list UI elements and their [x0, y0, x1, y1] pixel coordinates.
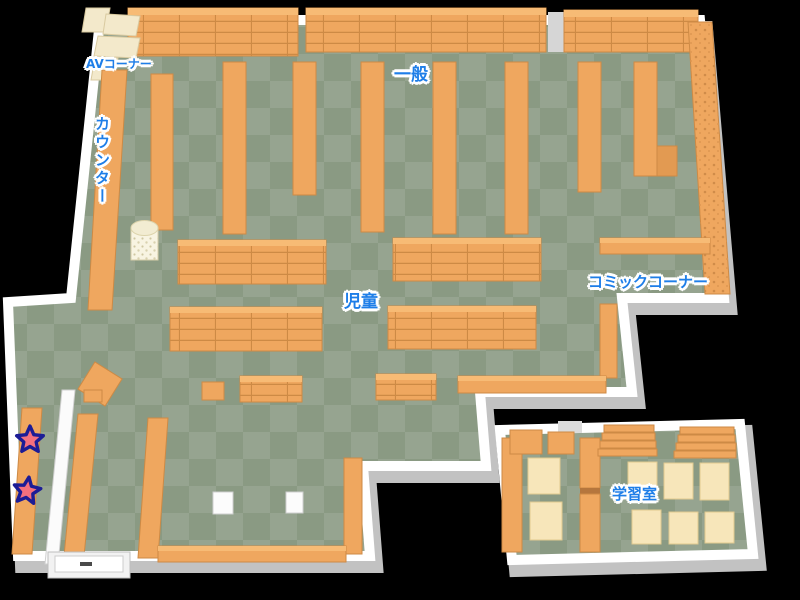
bookshelf: [604, 425, 654, 432]
top-wall-bookshelves: [128, 8, 698, 56]
divider-shelf: [580, 494, 600, 552]
bookshelf: [505, 62, 528, 234]
bookshelf: [361, 62, 384, 232]
bookshelf-top: [376, 374, 436, 380]
bookshelf-grid: [178, 246, 326, 284]
desk: [530, 502, 562, 540]
floor-map-canvas: [0, 0, 800, 600]
bookshelf: [548, 432, 574, 454]
bookshelf-top: [306, 8, 546, 15]
bookshelf-top: [178, 240, 326, 246]
bookshelf-grid: [376, 380, 436, 400]
bookshelf: [84, 390, 102, 402]
bookshelf: [433, 62, 456, 234]
bookshelf-grid: [306, 15, 546, 52]
bookshelf-top: [128, 8, 298, 15]
divider-shelf-joint: [580, 488, 600, 494]
bookshelf: [293, 62, 316, 195]
bookshelf: [223, 62, 246, 234]
book-carousel: [131, 221, 158, 261]
entrance-door: [48, 552, 130, 578]
av-unit: [103, 14, 140, 36]
desk: [700, 463, 729, 500]
area-label-study-room: 学習室: [612, 483, 657, 504]
area-label-counter: カウンター: [92, 116, 113, 226]
bookshelf-top: [388, 306, 536, 312]
bookshelf: [344, 458, 362, 554]
bookshelf-grid: [240, 382, 302, 402]
area-label-comic-corner: コミックコーナー: [588, 271, 708, 292]
study-room-doorway: [558, 421, 582, 433]
bookshelf-grid: [564, 17, 698, 52]
bookshelf: [634, 62, 657, 176]
area-label-general: 一般: [394, 60, 428, 85]
bookshelf: [602, 433, 655, 440]
bookshelf: [151, 74, 173, 230]
chair: [213, 492, 233, 514]
carousel-top: [131, 221, 158, 236]
bookshelf: [600, 304, 617, 378]
bookshelf-grid: [393, 244, 541, 281]
desk: [664, 463, 693, 499]
area-label-av-corner: AVコーナー: [86, 55, 152, 72]
desk: [632, 510, 661, 544]
top-wall-gap: [548, 12, 566, 52]
bookshelf: [202, 382, 224, 400]
desk: [528, 458, 560, 494]
bookshelf-grid: [388, 312, 536, 349]
bookshelf-top: [600, 238, 710, 243]
bookshelf: [674, 451, 736, 458]
bookshelf: [510, 430, 542, 454]
carousel-texture: [131, 236, 158, 260]
bookshelf-top: [158, 546, 346, 551]
library-floor-map: AVコーナー カウンター 一般 児童 コミックコーナー 学習室: [0, 0, 800, 600]
bookshelf-corner: [657, 146, 677, 176]
area-label-children: 児童: [344, 287, 378, 312]
bookshelf-top: [458, 376, 606, 381]
desk: [669, 512, 698, 544]
bookshelf-top: [170, 307, 322, 313]
bookshelf: [676, 443, 736, 450]
bookshelf: [600, 441, 656, 448]
bookshelf-grid: [128, 15, 298, 56]
bookshelf: [678, 435, 735, 442]
bookshelf-top: [564, 10, 698, 17]
bookshelf: [502, 438, 522, 552]
bookshelf: [680, 427, 734, 434]
door-handle: [80, 562, 92, 566]
bookshelf: [598, 449, 657, 456]
chair: [286, 492, 303, 513]
bookshelf: [578, 62, 601, 192]
divider-shelf: [580, 438, 600, 488]
bookshelf-top: [393, 238, 541, 244]
desk: [705, 512, 734, 543]
bookshelf-top: [240, 376, 302, 382]
bookshelf-grid: [170, 313, 322, 351]
